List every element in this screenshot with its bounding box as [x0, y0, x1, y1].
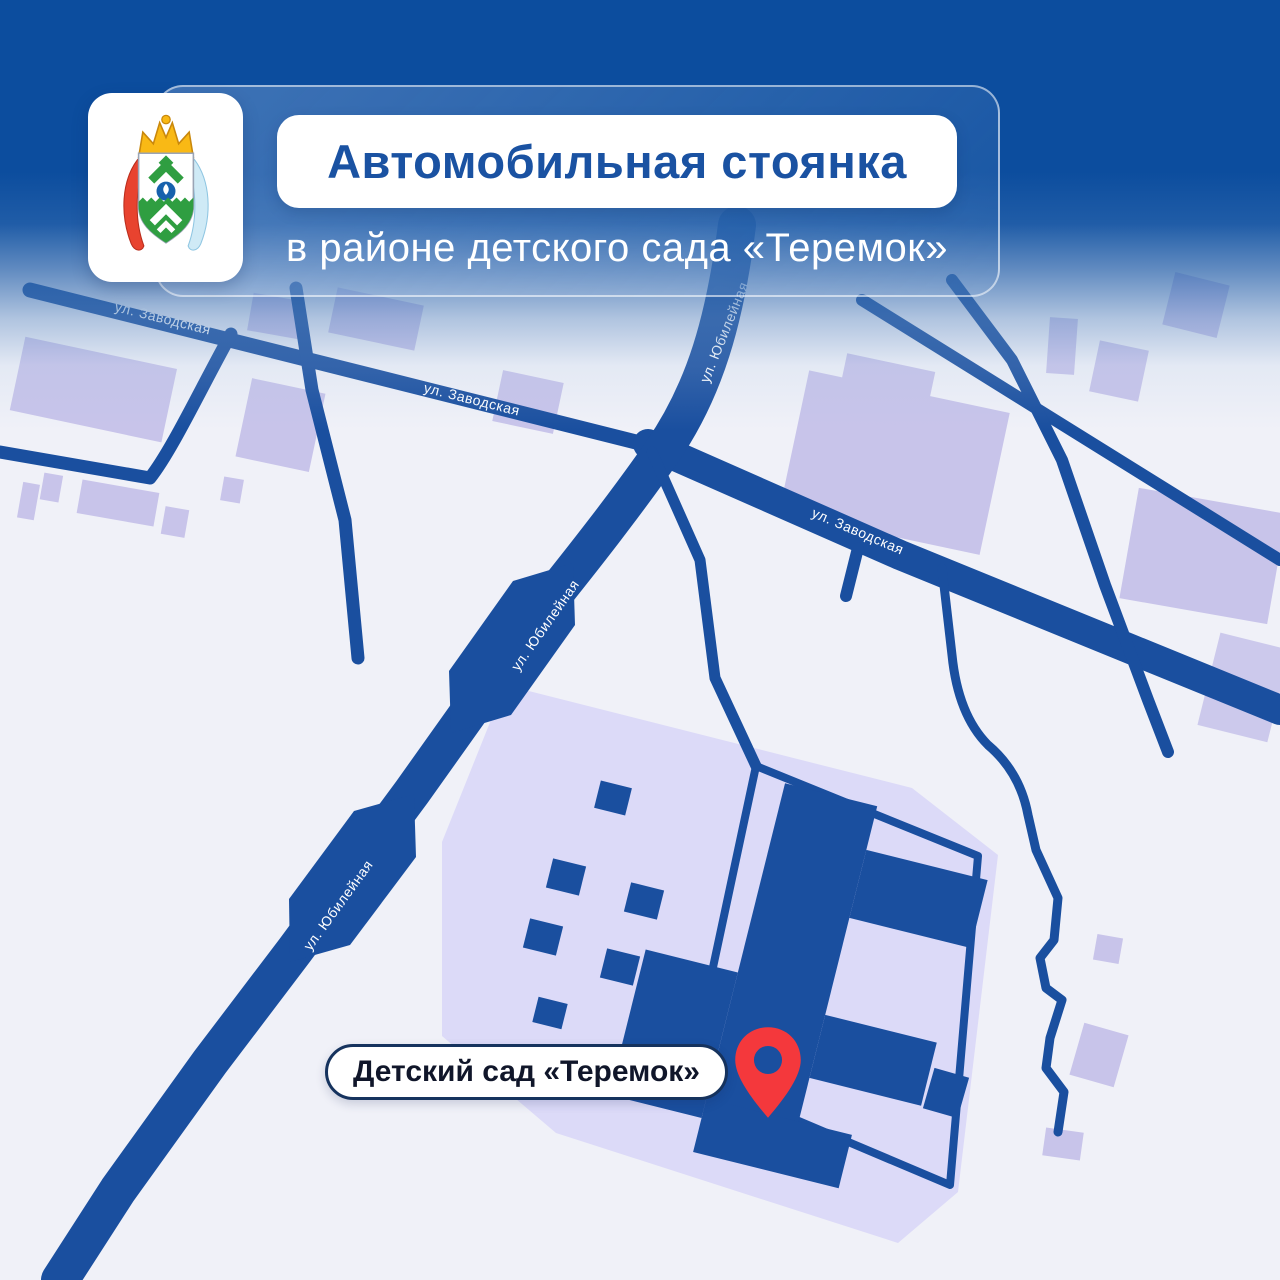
poi-label-pill: Детский сад «Теремок» [325, 1044, 728, 1100]
location-pin-icon [729, 1024, 807, 1122]
logo-card [88, 93, 243, 282]
poster-subtitle: в районе детского сада «Теремок» [277, 218, 957, 278]
coat-of-arms-icon [102, 109, 230, 267]
poster-title: Автомобильная стоянка [327, 134, 907, 189]
title-pill: Автомобильная стоянка [277, 115, 957, 208]
map-poster: ул. Заводская ул. Заводская ул. Заводска… [0, 0, 1280, 1280]
